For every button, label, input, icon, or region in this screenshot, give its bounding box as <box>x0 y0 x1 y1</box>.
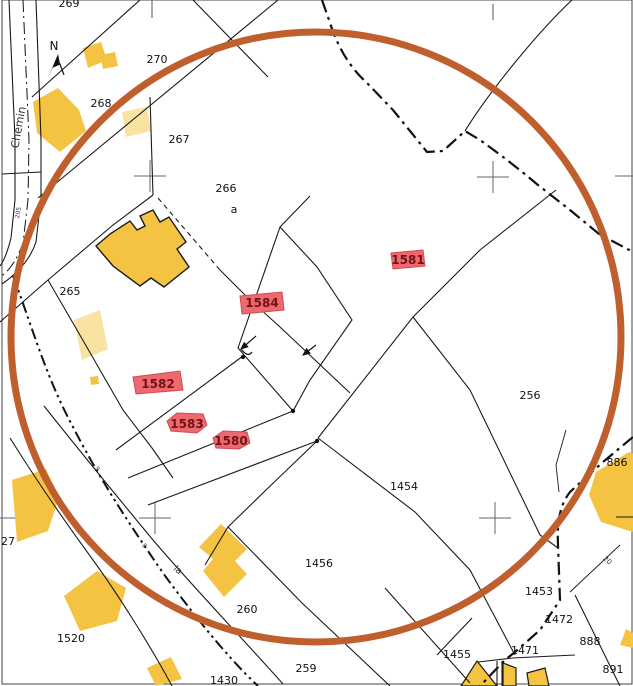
junction-dot <box>315 439 319 443</box>
highlighted-parcel-label-1582: 1582 <box>141 377 174 391</box>
parcel-label-266: 266 <box>216 182 237 195</box>
compass-n-label: N <box>50 39 59 53</box>
parcel-label-1453: 1453 <box>525 585 553 598</box>
parcel-label-265: 265 <box>60 285 81 298</box>
parcel-label-1471: 1471 <box>511 644 539 657</box>
parcel-label-1456: 1456 <box>305 557 333 570</box>
building-small-dot <box>90 376 99 385</box>
parcel-label-259: 259 <box>296 662 317 675</box>
cadastral-map: 15811584158215831580 N 269270268267266a2… <box>0 0 633 686</box>
junction-dot <box>241 355 245 359</box>
parcel-label-268: 268 <box>91 97 112 110</box>
parcel-label-260: 260 <box>237 603 258 616</box>
parcel-label-891: 891 <box>603 663 624 676</box>
parcel-label-256: 256 <box>520 389 541 402</box>
parcel-label-267: 267 <box>169 133 190 146</box>
parcel-label-886: 886 <box>607 456 628 469</box>
parcel-label-1455: 1455 <box>443 648 471 661</box>
building-270-b <box>100 52 118 69</box>
parcel-label-1454: 1454 <box>390 480 418 493</box>
parcel-label-a: a <box>231 203 238 216</box>
highlighted-parcel-label-1583: 1583 <box>170 417 203 431</box>
parcel-label-27: 27 <box>1 535 15 548</box>
highlighted-parcel-label-1580: 1580 <box>214 434 247 448</box>
highlighted-parcel-label-1584: 1584 <box>245 296 278 310</box>
parcel-label-270: 270 <box>147 53 168 66</box>
parcel-label-1472: 1472 <box>545 613 573 626</box>
parcel-label-888: 888 <box>580 635 601 648</box>
parcel-label-269: 269 <box>59 0 80 10</box>
highlighted-parcel-label-1581: 1581 <box>391 253 424 267</box>
parcel-label-1430: 1430 <box>210 674 238 686</box>
cadastral-map-svg: 15811584158215831580 N 269270268267266a2… <box>0 0 633 686</box>
parcel-label-1520: 1520 <box>57 632 85 645</box>
junction-dot <box>291 409 295 413</box>
